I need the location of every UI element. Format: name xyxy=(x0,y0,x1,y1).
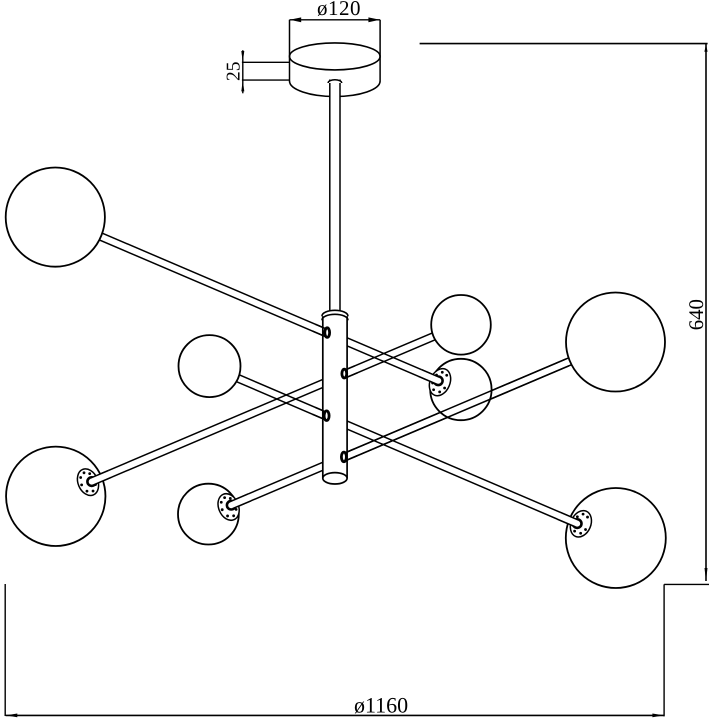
svg-text:ø1160: ø1160 xyxy=(354,692,408,717)
svg-text:25: 25 xyxy=(223,62,244,82)
svg-text:640: 640 xyxy=(685,299,708,330)
svg-text:ø120: ø120 xyxy=(317,0,361,20)
